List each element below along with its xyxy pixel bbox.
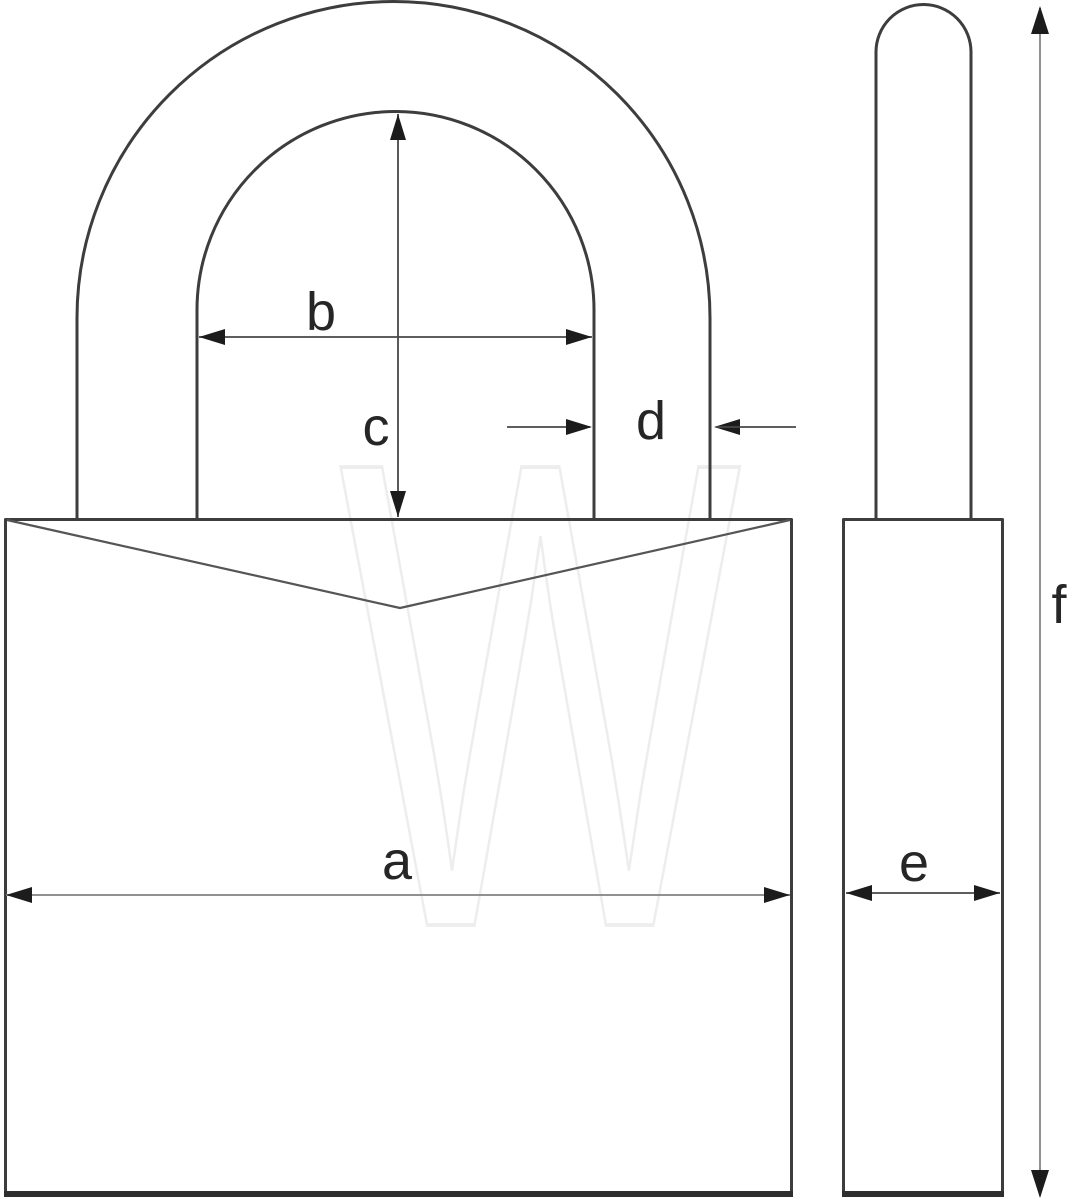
dimension-a-arrowhead-left bbox=[6, 887, 32, 903]
dimension-a-arrowhead-right bbox=[764, 887, 790, 903]
dimension-f-arrowhead-top bbox=[1031, 6, 1049, 34]
side-view bbox=[842, 5, 1004, 1195]
dimension-c-arrowhead-top bbox=[390, 114, 406, 140]
dimension-label-c: c bbox=[363, 400, 390, 454]
dimension-label-a: a bbox=[382, 834, 412, 888]
dimension-e-arrowhead-right bbox=[974, 885, 1000, 901]
watermark: W bbox=[339, 324, 745, 1067]
dimension-label-b: b bbox=[306, 285, 336, 339]
padlock-dimension-diagram: W bbox=[0, 0, 1067, 1200]
dimension-f-arrowhead-bottom bbox=[1031, 1170, 1049, 1198]
dimension-f bbox=[1031, 6, 1049, 1198]
diagram-canvas: W bbox=[0, 0, 1067, 1200]
dimension-e-arrowhead-left bbox=[846, 885, 872, 901]
watermark-w: W bbox=[339, 324, 745, 1067]
side-shackle-outline bbox=[876, 5, 971, 520]
dimension-label-f: f bbox=[1051, 578, 1066, 632]
dimension-label-d: d bbox=[636, 394, 666, 448]
dimension-b-arrowhead-left bbox=[199, 329, 225, 345]
dimension-label-e: e bbox=[899, 836, 929, 890]
